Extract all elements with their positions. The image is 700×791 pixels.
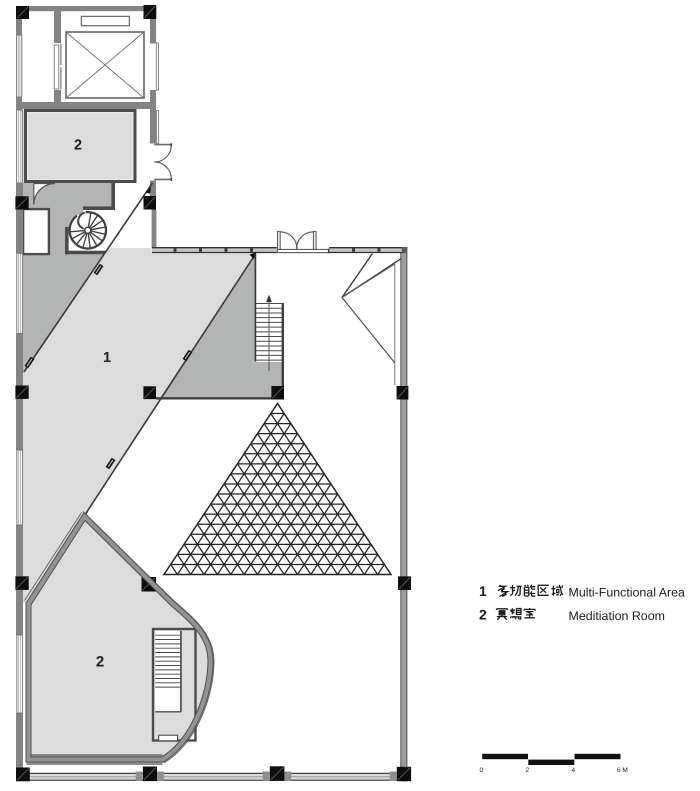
svg-text:2: 2 (74, 138, 82, 154)
svg-text:6 M: 6 M (617, 767, 628, 774)
svg-text:0: 0 (480, 767, 484, 774)
svg-text:1: 1 (479, 583, 487, 599)
svg-text:2: 2 (526, 767, 530, 774)
svg-text:2: 2 (479, 607, 487, 623)
svg-text:4: 4 (572, 767, 576, 774)
svg-text:1: 1 (103, 350, 111, 366)
svg-text:2: 2 (96, 654, 104, 671)
svg-text:Meditiation Room: Meditiation Room (569, 609, 665, 623)
svg-text:Multi-Functional Area: Multi-Functional Area (569, 586, 685, 600)
